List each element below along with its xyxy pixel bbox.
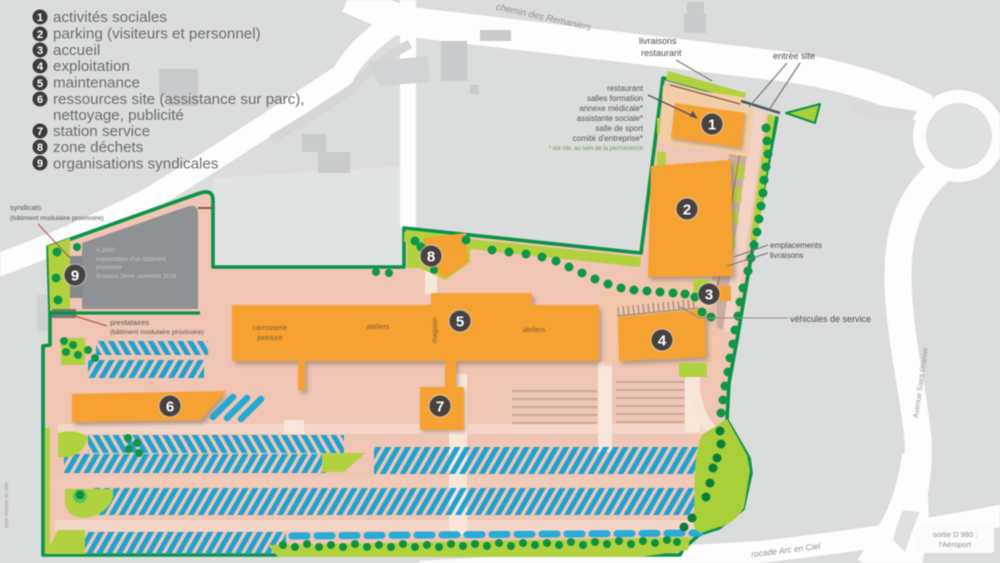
svg-text:1: 1 [708, 117, 716, 134]
svg-text:implantation d'un bâtiment: implantation d'un bâtiment [96, 257, 166, 263]
svg-text:activités sociales: activités sociales [53, 9, 167, 26]
svg-text:livraisons: livraisons [639, 36, 677, 46]
svg-text:8: 8 [37, 142, 43, 154]
svg-text:maintenance: maintenance [53, 75, 140, 92]
svg-text:3: 3 [37, 45, 43, 57]
svg-text:emplacements: emplacements [770, 241, 822, 250]
svg-text:4: 4 [37, 61, 44, 73]
svg-text:entrée site: entrée site [773, 51, 815, 61]
svg-text:station service: station service [53, 123, 150, 140]
svg-text:restaurant: restaurant [607, 84, 644, 93]
svg-text:l'Aéroport: l'Aéroport [939, 540, 972, 549]
svg-text:5: 5 [37, 78, 43, 90]
svg-text:3: 3 [705, 287, 713, 304]
svg-text:ressources site (assistance su: ressources site (assistance sur parc), [53, 91, 305, 108]
svg-text:ateliers: ateliers [523, 327, 546, 334]
svg-text:restaurant: restaurant [641, 48, 682, 58]
svg-text:comité d'entreprise*: comité d'entreprise* [573, 134, 643, 143]
svg-text:prestataires: prestataires [110, 318, 149, 327]
svg-text:plan masse du site: plan masse du site [4, 482, 10, 528]
svg-text:4: 4 [658, 333, 667, 350]
svg-text:magasin: magasin [432, 317, 439, 344]
svg-text:syndicats: syndicats [10, 203, 42, 212]
svg-text:7: 7 [37, 126, 43, 138]
svg-text:nettoyage, publicité: nettoyage, publicité [53, 107, 184, 124]
svg-text:2: 2 [37, 29, 43, 41]
svg-text:6: 6 [37, 94, 43, 106]
svg-text:annexe médicale*: annexe médicale* [579, 104, 643, 113]
svg-text:salle de sport: salle de sport [595, 124, 643, 133]
svg-text:livraisons: livraisons [770, 251, 803, 260]
svg-text:(bâtiment modulaire provisoire: (bâtiment modulaire provisoire) [110, 329, 204, 336]
svg-text:assistante sociale*: assistante sociale* [577, 114, 643, 123]
svg-text:A 2040 :: A 2040 : [96, 248, 118, 254]
svg-text:peinture: peinture [257, 335, 282, 342]
svg-text:2: 2 [683, 202, 691, 219]
svg-text:9: 9 [71, 268, 79, 285]
svg-text:7: 7 [436, 399, 444, 416]
svg-text:(bâtiment modulaire provisoire: (bâtiment modulaire provisoire) [10, 215, 104, 222]
svg-text:9: 9 [37, 158, 43, 170]
svg-text:ateliers: ateliers [367, 324, 390, 331]
svg-text:exploitation: exploitation [53, 58, 130, 75]
svg-text:sortie D 980 :: sortie D 980 : [933, 530, 978, 539]
svg-text:salles formation: salles formation [587, 94, 643, 103]
svg-text:carrosserie: carrosserie [253, 325, 288, 332]
svg-text:1: 1 [37, 12, 43, 24]
svg-text:5: 5 [456, 314, 464, 331]
svg-text:provisoire: provisoire [96, 265, 123, 271]
svg-text:parking (visiteurs et personne: parking (visiteurs et personnel) [53, 26, 261, 43]
svg-text:6: 6 [166, 399, 174, 416]
svg-text:* sur rdv, au sein de la perma: * sur rdv, au sein de la permanence [549, 146, 644, 152]
svg-text:accueil: accueil [53, 42, 100, 59]
svg-text:zone déchets: zone déchets [53, 139, 144, 156]
svg-text:8: 8 [427, 249, 435, 266]
svg-text:véhicules de service: véhicules de service [790, 314, 871, 324]
svg-text:Bureaux 2ème semestre 2016: Bureaux 2ème semestre 2016 [96, 274, 177, 280]
svg-text:organisations syndicales: organisations syndicales [53, 156, 219, 173]
